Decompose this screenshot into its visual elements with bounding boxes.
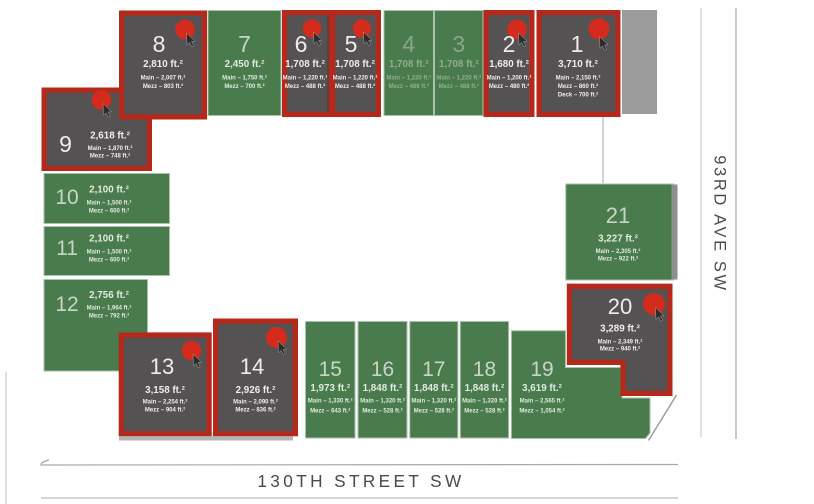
svg-text:Main – 1,500 ft.²: Main – 1,500 ft.² [87,200,132,207]
svg-text:Mezz – 480 ft.²: Mezz – 480 ft.² [489,83,529,90]
svg-text:2,926 ft.²: 2,926 ft.² [236,385,276,396]
svg-text:Mezz – 528 ft.²: Mezz – 528 ft.² [464,408,504,415]
svg-text:Main – 1,220 ft.²: Main – 1,220 ft.² [333,75,378,82]
svg-text:3,158 ft.²: 3,158 ft.² [145,385,185,396]
svg-text:2: 2 [503,31,516,57]
svg-text:Main – 1,220 ft.²: Main – 1,220 ft.² [386,75,431,82]
svg-text:3,710 ft.²: 3,710 ft.² [558,59,598,70]
svg-text:Mezz – 792 ft.²: Mezz – 792 ft.² [89,313,129,320]
svg-text:14: 14 [240,354,264,379]
svg-text:3,619 ft.²: 3,619 ft.² [522,383,562,394]
svg-text:5: 5 [345,31,358,57]
svg-text:8: 8 [153,31,166,57]
svg-text:2,100 ft.²: 2,100 ft.² [89,234,129,245]
svg-text:2,618 ft.²: 2,618 ft.² [90,131,130,142]
svg-text:12: 12 [55,293,78,316]
svg-text:1,708 ft.²: 1,708 ft.² [389,59,429,70]
svg-text:Main – 2,150 ft.²: Main – 2,150 ft.² [556,75,601,82]
svg-text:15: 15 [319,358,342,381]
svg-text:130TH STREET SW: 130TH STREET SW [257,471,464,491]
svg-text:2,756 ft.²: 2,756 ft.² [89,290,129,301]
svg-text:21: 21 [606,203,630,228]
svg-text:1,708 ft.²: 1,708 ft.² [335,59,375,70]
svg-text:19: 19 [530,358,553,381]
svg-text:Main – 2,349 ft.²: Main – 2,349 ft.² [598,339,643,346]
svg-text:Main – 1,220 ft.²: Main – 1,220 ft.² [436,75,481,82]
svg-text:10: 10 [55,186,78,209]
svg-text:1,848 ft.²: 1,848 ft.² [363,383,403,394]
svg-text:Main – 1,320 ft.²: Main – 1,320 ft.² [411,398,456,405]
svg-text:18: 18 [473,358,496,381]
svg-text:6: 6 [295,31,308,57]
svg-text:Main – 1,870 ft.²: Main – 1,870 ft.² [88,145,133,152]
svg-text:Mezz – 488 ft.²: Mezz – 488 ft.² [389,83,429,90]
svg-text:3,227 ft.²: 3,227 ft.² [598,234,638,245]
svg-text:Mezz – 488 ft.²: Mezz – 488 ft.² [439,83,479,90]
svg-text:Mezz – 1,054 ft.²: Mezz – 1,054 ft.² [519,408,564,415]
svg-text:Main – 1,964 ft.²: Main – 1,964 ft.² [87,305,132,312]
svg-text:1: 1 [571,31,584,57]
svg-text:1,848 ft.²: 1,848 ft.² [414,383,454,394]
svg-text:Mezz – 700 ft.²: Mezz – 700 ft.² [224,83,264,90]
svg-text:Mezz – 860 ft.²: Mezz – 860 ft.² [558,83,598,90]
svg-text:Deck – 700 ft.²: Deck – 700 ft.² [558,92,598,99]
svg-text:20: 20 [608,294,632,319]
svg-text:Mezz – 528 ft.²: Mezz – 528 ft.² [414,408,454,415]
svg-text:Main – 1,320 ft.²: Main – 1,320 ft.² [462,398,507,405]
svg-text:Mezz – 836 ft.²: Mezz – 836 ft.² [235,407,275,414]
svg-text:16: 16 [371,358,394,381]
svg-text:1,848 ft.²: 1,848 ft.² [465,383,505,394]
svg-text:Main – 1,330 ft.²: Main – 1,330 ft.² [308,398,353,405]
svg-text:1,680 ft.²: 1,680 ft.² [489,59,529,70]
svg-text:Main – 2,565 ft.²: Main – 2,565 ft.² [520,398,565,405]
svg-text:3,289 ft.²: 3,289 ft.² [600,324,640,335]
svg-text:Mezz – 488 ft.²: Mezz – 488 ft.² [335,83,375,90]
svg-text:13: 13 [150,354,174,379]
svg-text:2,450 ft.²: 2,450 ft.² [225,59,265,70]
svg-text:Main – 2,007 ft.²: Main – 2,007 ft.² [141,75,186,82]
svg-text:Main – 2,254 ft.²: Main – 2,254 ft.² [143,399,188,406]
svg-text:1,708 ft.²: 1,708 ft.² [439,59,479,70]
svg-text:1,708 ft.²: 1,708 ft.² [285,59,325,70]
svg-text:1,973 ft.²: 1,973 ft.² [310,383,350,394]
svg-text:Mezz – 643 ft.²: Mezz – 643 ft.² [310,408,350,415]
svg-text:Main – 2,090 ft.²: Main – 2,090 ft.² [233,399,278,406]
svg-text:Mezz – 904 ft.²: Mezz – 904 ft.² [145,407,185,414]
svg-text:Mezz – 922 ft.²: Mezz – 922 ft.² [598,256,638,263]
svg-text:Mezz – 600 ft.²: Mezz – 600 ft.² [89,257,129,264]
svg-text:4: 4 [402,31,415,57]
svg-text:17: 17 [422,358,445,381]
svg-text:Mezz – 488 ft.²: Mezz – 488 ft.² [285,83,325,90]
svg-text:Mezz – 940 ft.²: Mezz – 940 ft.² [600,346,640,353]
svg-text:93RD AVE SW: 93RD AVE SW [711,155,729,292]
svg-text:11: 11 [56,237,78,260]
svg-text:Mezz – 528 ft.²: Mezz – 528 ft.² [362,408,402,415]
svg-text:2,100 ft.²: 2,100 ft.² [89,185,129,196]
svg-text:7: 7 [238,31,251,57]
svg-text:9: 9 [59,131,72,157]
svg-text:Main – 1,500 ft.²: Main – 1,500 ft.² [87,249,132,256]
svg-text:Main – 1,200 ft.²: Main – 1,200 ft.² [487,75,532,82]
svg-text:3: 3 [452,31,465,57]
svg-text:Mezz – 600 ft.²: Mezz – 600 ft.² [89,208,129,215]
svg-text:Main – 1,220 ft.²: Main – 1,220 ft.² [283,75,328,82]
svg-text:Main – 1,320 ft.²: Main – 1,320 ft.² [360,398,405,405]
svg-text:Main – 1,750 ft.²: Main – 1,750 ft.² [222,75,267,82]
svg-text:Mezz – 803 ft.²: Mezz – 803 ft.² [143,83,183,90]
svg-text:2,810 ft.²: 2,810 ft.² [143,59,183,70]
svg-text:Main – 2,305 ft.²: Main – 2,305 ft.² [596,248,641,255]
svg-text:Mezz – 748 ft.²: Mezz – 748 ft.² [90,153,130,160]
